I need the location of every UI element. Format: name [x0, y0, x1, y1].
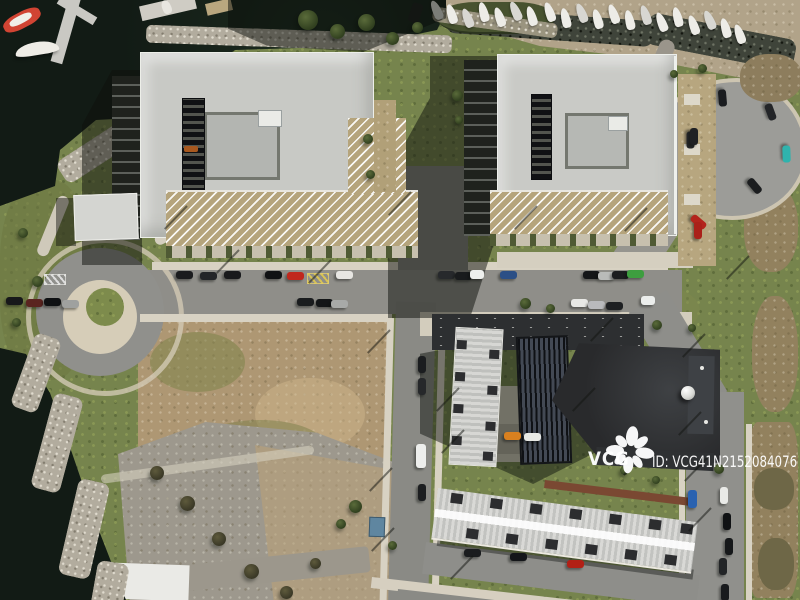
dormer — [648, 519, 661, 530]
scrub-bush — [212, 532, 226, 546]
dormer — [487, 386, 497, 396]
dormer — [455, 372, 465, 382]
parked-car — [200, 272, 217, 280]
parked-car — [224, 271, 241, 279]
bush — [366, 170, 375, 179]
parked-car — [265, 271, 282, 279]
parked-car — [510, 553, 527, 561]
dormer — [505, 533, 518, 544]
parked-car — [504, 432, 521, 440]
parked-car — [438, 271, 455, 279]
tree — [358, 14, 375, 31]
bush — [652, 320, 662, 330]
aerial-photo: VCG ID: VCG41N2152084076 — [0, 0, 800, 600]
building1-west-wing-roof — [73, 193, 139, 241]
parked-car — [719, 558, 727, 575]
tree — [330, 24, 345, 39]
dormer — [529, 503, 542, 514]
scrub-bush — [150, 466, 164, 480]
bush — [349, 500, 362, 513]
dormer — [624, 549, 637, 560]
dormer — [456, 340, 466, 350]
parked-car — [588, 301, 605, 309]
dirt-patch — [752, 296, 798, 412]
sidewalk — [140, 314, 392, 322]
parked-car — [627, 270, 644, 278]
road-hatch-marking — [44, 274, 66, 285]
roundabout-grass-center — [86, 288, 124, 326]
parked-car — [782, 145, 791, 162]
dormer — [664, 554, 677, 565]
dormer — [450, 493, 463, 504]
parked-car — [418, 484, 426, 501]
bush — [520, 298, 531, 309]
parked-car — [567, 560, 584, 568]
bush — [363, 134, 373, 144]
parked-car — [418, 356, 426, 373]
bush — [670, 70, 678, 78]
building1-rust-equipment — [184, 146, 198, 152]
parked-car — [723, 513, 731, 530]
parked-car — [331, 300, 348, 308]
bush — [32, 276, 43, 287]
parked-car — [694, 222, 702, 239]
parked-car — [287, 272, 304, 280]
rooftop-dome — [681, 386, 695, 400]
building1-terrace-roof — [166, 190, 418, 250]
patio — [684, 94, 700, 105]
parked-car — [718, 89, 727, 107]
parked-car — [62, 300, 79, 308]
parked-car — [500, 271, 517, 279]
parked-car — [721, 584, 729, 600]
dormer — [585, 544, 598, 555]
building2-east-eave — [674, 56, 677, 234]
tree — [386, 32, 399, 45]
scrub-patch — [758, 538, 794, 590]
dormer — [466, 528, 479, 539]
dormer — [545, 539, 558, 550]
rooftop-vent — [700, 366, 704, 370]
bush — [388, 541, 397, 550]
dormer — [453, 404, 463, 414]
parked-car — [524, 433, 541, 441]
parked-car — [418, 378, 426, 395]
dormer — [483, 451, 493, 461]
bush — [452, 90, 463, 101]
building2-hvac-units — [531, 94, 552, 180]
tree — [298, 10, 318, 30]
dormer — [490, 498, 503, 509]
parked-car — [44, 298, 61, 306]
scrub-bush — [280, 586, 293, 599]
dormer — [485, 422, 495, 432]
parked-car — [176, 271, 193, 279]
dormer — [569, 508, 582, 519]
bush — [546, 304, 555, 313]
parked-truck — [416, 444, 426, 468]
parked-car — [725, 538, 733, 555]
scrub-bush — [180, 496, 195, 511]
parked-car — [26, 299, 43, 307]
bush — [698, 64, 707, 73]
parked-car — [336, 271, 353, 279]
dormer — [489, 350, 499, 360]
parked-car — [690, 128, 698, 145]
vcg-watermark: VCG ID: VCG41N2152084076 — [584, 424, 800, 484]
forecourt-paving — [497, 252, 693, 268]
bush — [336, 519, 346, 529]
building2-roof-penthouse — [608, 116, 628, 131]
building2-planter-row — [490, 234, 668, 246]
scrub-bush — [310, 558, 321, 569]
parked-van — [470, 270, 484, 279]
bush — [18, 228, 28, 238]
vcg-starburst-icon — [604, 424, 656, 478]
cul-de-sac-island — [740, 54, 800, 102]
dormer — [609, 514, 622, 525]
bush — [12, 318, 21, 327]
building1-planter-row — [166, 246, 418, 258]
parked-car — [297, 298, 314, 306]
garden-strip — [374, 100, 396, 192]
parked-car — [606, 302, 623, 310]
tree — [412, 22, 423, 33]
parked-van — [641, 296, 655, 305]
parked-truck — [688, 490, 697, 508]
bush — [688, 324, 696, 332]
vcg-id-text: ID: VCG41N2152084076 — [652, 452, 797, 471]
townhouse-row-roof — [448, 327, 503, 467]
blue-shed — [369, 517, 386, 538]
parked-car — [6, 297, 23, 305]
building1-roof-penthouse — [258, 110, 282, 127]
patio — [684, 194, 700, 205]
bush — [455, 116, 463, 124]
parked-car — [720, 487, 728, 504]
parked-car — [571, 299, 588, 307]
scrub-bush — [244, 564, 259, 579]
